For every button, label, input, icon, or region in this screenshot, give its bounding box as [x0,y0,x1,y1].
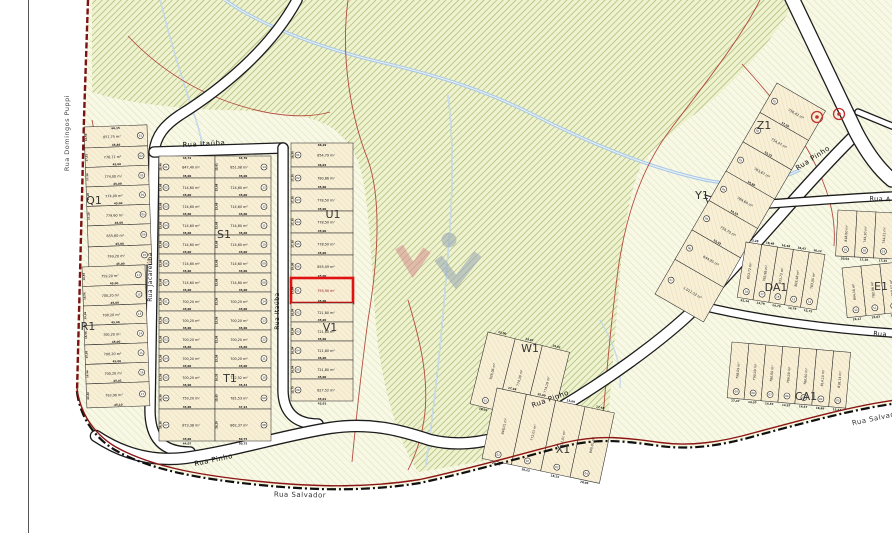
dimension-label: 45,86 [112,143,121,147]
dimension-label: 45,00 [239,231,248,235]
dimension-label: 45,10 [114,403,123,407]
lot-number: 07 [164,423,168,427]
street-label-rua_east: Rua [873,330,887,339]
lot-number: 03 [296,330,300,334]
dimension-label: 43,01 [318,397,327,401]
lot-number: 04 [164,357,168,361]
block-label-Q1: Q1 [86,194,102,207]
dimension-label: 45,00 [239,364,248,368]
dimension-label: 45,00 [112,340,121,344]
dimension-label: 45,00 [183,250,192,254]
lot-area-label: 774,00 m² [105,194,123,199]
dimension-label: 14,57 [782,403,791,408]
lot-area-label: 776,71 m² [104,155,122,160]
lot-number: 02 [296,176,300,180]
dimension-label: 45,00 [111,320,120,324]
dimension-label: 15,68 [159,183,162,191]
dimension-label: 44,07 [183,441,192,445]
lot-area-label: 799,20 m² [107,254,125,259]
block-label-V1: V1 [323,321,338,334]
dimension-label: 45,00 [239,288,248,292]
street-label-jacareuba: Rua Jacareúba [147,252,154,302]
lot-area-label: 700,20 m² [182,319,200,323]
dimension-label: 20,04 [841,256,850,260]
street-label-itauba_side: Rua Itaúba [274,292,281,329]
dimension-label: 16,50 [291,151,294,159]
lot-number: 05 [296,242,300,246]
dimension-label: 45,00 [183,288,192,292]
lot-area-label: 714,60 m² [230,205,248,209]
dimension-label: 45,00 [183,231,192,235]
dimension-label: 15,68 [159,240,162,248]
dimension-label: 16,56 [83,273,86,281]
block-RA: 20,04818,60 m²0117,26744,30 m²0217,25744… [835,210,892,263]
dimension-label: 45,00 [115,242,124,246]
dimension-label: 26,29 [215,421,218,429]
block-label-Z1: Z1 [757,119,772,132]
dimension-label: 15,68 [159,221,162,229]
lot-area-label: 714,60 m² [182,262,200,266]
dimension-label: 15,56 [159,335,162,343]
lot-area-label: 778,50 m² [317,198,335,202]
lot-number: 01 [296,289,300,293]
dimension-label: 19,00 [291,262,294,270]
dimension-label: 45,00 [112,359,121,363]
dimension-label: 15,56 [86,370,89,378]
dimension-label: 45,44 [239,383,248,387]
lot-number: 02 [164,186,168,190]
dimension-label: 43,01 [318,401,327,405]
dimension-label: 15,75 [291,386,294,394]
lot-number: 01 [844,247,848,251]
dimension-label: 17,84 [291,286,294,294]
dimension-label: 15,68 [215,278,218,286]
dimension-label: 45,00 [318,229,327,233]
lot-number: 11 [137,273,141,277]
block-label-R1: R1 [81,320,96,333]
lot-area-label: 855,09 m² [317,265,335,269]
lot-area-label: 700,20 m² [182,300,200,304]
lot-number: 08 [262,423,266,427]
lot-area-label: 714,60 m² [182,224,200,228]
lot-number: 10 [262,243,266,247]
dimension-label: 45,00 [239,326,248,330]
lot-area-label: 827,52 m² [317,388,335,392]
lot-number: 06 [164,262,168,266]
dimension-label: 15,65 [215,394,218,402]
dimension-label: 17,30 [291,174,294,182]
lot-area-label: 700,20 m² [182,338,200,342]
dimension-label: 45,00 [239,193,248,197]
lot-area-label: 851,08 m² [230,165,248,169]
dimension-label: 15,56 [215,335,218,343]
dimension-label: 15,68 [215,202,218,210]
dimension-label: 19,30 [159,421,162,429]
lot-number: 14 [262,165,266,169]
survey-marker-dot [837,112,841,116]
dimension-label: 45,00 [110,301,119,305]
lot-number: 03 [140,173,144,177]
lot-area-label: 873,38 m² [182,423,200,427]
dimension-label: 15,68 [159,202,162,210]
lot-number: 05 [141,212,145,216]
lot-number: 02 [164,319,168,323]
lot-number: 13 [138,312,142,316]
dimension-label: 43,70 [239,156,248,160]
block-label-X1: X1 [556,443,571,456]
dimension-label: 45,00 [183,307,192,311]
street-label-salvador_e: Rua Salvador [851,409,892,428]
lot-number: 01 [139,133,143,137]
dimension-label: 18,23 [521,467,530,473]
dimension-label: 45,00 [116,262,125,266]
dimension-label: 16,04 [291,308,294,316]
lot-area-label: 847,40 m² [182,165,200,169]
dimension-label: 16,69 [816,406,825,411]
dimension-label: 45,00 [112,162,121,166]
dimension-label: 15,68 [215,240,218,248]
lot-number: 11 [262,224,266,228]
dimension-label: 15,56 [83,292,86,300]
dimension-label: 23,36 [87,392,90,400]
lot-number: 07 [143,253,147,257]
lot-number: 01 [164,300,168,304]
dimension-label: 45,00 [318,185,327,189]
lot-area-label: 700,20 m² [102,293,120,298]
lot-number: 05 [164,376,168,380]
dimension-label: 45,00 [239,345,248,349]
lot-area-label: 857,75 m² [103,135,121,140]
lot-number: 12 [262,205,266,209]
street-label-domingos_puppi: Rua Domingos Puppi [63,95,71,171]
lot-area-label: 700,20 m² [230,357,248,361]
block-U1: 66,2946,0416,5001854,79 m²45,0017,300278… [291,143,353,278]
dimension-label: 16,35 [215,373,218,381]
lot-number: 14 [139,331,143,335]
lot-number: 12 [137,292,141,296]
dimension-label: 14,57 [748,400,757,405]
dimension-label: 45,00 [183,345,192,349]
lot-number: 15 [139,351,143,355]
lot-number: 16 [140,370,144,374]
dimension-label: 45,00 [183,326,192,330]
lot-number: 12 [262,338,266,342]
dimension-label: 14,57 [765,401,774,406]
block-V1: 45,0017,8401793,90 m²45,0016,0402721,80 … [291,278,353,405]
dimension-label: 15,56 [215,316,218,324]
dimension-label: 45,00 [239,212,248,216]
lot-area-label: 700,20 m² [230,319,248,323]
lot-area-label: 700,20 m² [102,313,120,318]
lot-number: 03 [296,198,300,202]
lot-number: 13 [262,319,266,323]
lot-number: 09 [262,262,266,266]
dimension-label: 45,00 [183,383,192,387]
lot-number: 10 [262,376,266,380]
lot-area-label: 862,37 m² [230,423,248,427]
dimension-label: 43,72 [183,156,192,160]
dimension-label: 47,24 [239,405,248,409]
lot-area-label: 700,20 m² [104,371,122,376]
lot-number: 06 [164,396,168,400]
lot-number: 13 [262,186,266,190]
dimension-label: 45,00 [113,182,122,186]
lot-number: 03 [164,205,168,209]
dimension-label: 45,00 [183,212,192,216]
dimension-label: 17,26 [860,257,869,261]
dimension-label: 16,04 [291,327,294,335]
dimension-label: 17,31 [85,153,88,161]
lot-area-label: 714,60 m² [230,186,248,190]
dimension-label: 16,04 [291,346,294,354]
block-S1: 43,7245,0015,4601847,40 m²45,0015,680271… [159,156,215,292]
block-label-E1: E1 [874,280,888,293]
lot-area-label: 793,90 m² [105,393,123,398]
lot-area-label: 714,60 m² [182,243,200,247]
lot-number: 06 [296,388,300,392]
block-S1: 43,7045,0015,6114851,08 m²45,0015,681371… [215,156,271,292]
dimension-label: 14,57 [799,404,808,409]
dimension-label: 15,56 [159,316,162,324]
lot-area-label: 721,80 m² [317,368,335,372]
dimension-label: 15,56 [84,311,87,319]
dimension-label: 15,56 [159,354,162,362]
block-R1: 45,0016,5611759,20 m²45,0015,5612700,20 … [82,265,150,408]
survey-marker-dot [815,115,819,119]
dimension-label: 50,75 [239,441,248,445]
dimension-label: 45,00 [183,405,192,409]
plat-map: 66,1545,8616,5001857,75 m²45,0017,310277… [0,0,892,533]
dimension-label: 45,00 [318,356,327,360]
dimension-label: 45,00 [110,281,119,285]
lot-area-label: 700,20 m² [182,357,200,361]
lot-number: 02 [296,311,300,315]
dimension-label: 45,00 [239,250,248,254]
dimension-label: 66,15 [111,126,120,130]
dimension-label: 15,56 [85,350,88,358]
dimension-label: 15,68 [159,278,162,286]
dimension-label: 45,01 [113,379,122,383]
lot-number: 14 [262,300,266,304]
lot-area-label: 759,20 m² [182,396,200,400]
dimension-label: 45,00 [318,299,327,303]
lot-area-label: 854,79 m² [317,153,335,157]
dimension-label: 15,56 [215,354,218,362]
lot-area-label: 855,60 m² [106,234,124,239]
lot-area-label: 714,60 m² [182,205,200,209]
dimension-label: 15,68 [215,259,218,267]
dimension-label: 45,00 [239,269,248,273]
lot-area-label: 714,60 m² [230,243,248,247]
lot-area-label: 700,20 m² [104,352,122,357]
dimension-label: 15,56 [159,297,162,305]
dimension-label: 45,00 [114,201,123,205]
lot-number: 06 [296,265,300,269]
dimension-label: 18,23 [550,473,559,479]
lot-area-label: 714,60 m² [182,186,200,190]
lot-number: 09 [262,396,266,400]
lot-area-label: 780,86 m² [317,176,335,180]
lot-area-label: 781,53 m² [230,396,248,400]
dimension-label: 45,00 [318,337,327,341]
dimension-label: 45,00 [239,174,248,178]
dimension-label: 15,56 [215,297,218,305]
lot-number: 06 [142,232,146,236]
lot-number: 04 [164,224,168,228]
lot-area-label: 721,80 m² [317,311,335,315]
lot-number: 05 [296,368,300,372]
dimension-label: 45,00 [183,437,192,441]
lot-area-label: 721,80 m² [317,349,335,353]
block-T1: 45,0015,5614700,20 m²45,0015,5613700,20 … [215,292,271,445]
lot-area-label: 700,20 m² [182,376,200,380]
block-label-Y1: Y1 [694,189,709,202]
dimension-label: 17,47 [731,398,740,403]
lot-area-label: 774,00 m² [104,174,122,179]
lot-number: 11 [262,357,266,361]
lot-area-label: 714,60 m² [230,262,248,266]
lot-area-label: 714,60 m² [182,281,200,285]
street-label-rua_a: Rua A [869,195,891,204]
dimension-label: 20,05 [580,480,589,486]
dimension-label: 17,20 [86,173,89,181]
block-label-T1: T1 [222,372,237,385]
lot-area-label: 779,60 m² [106,213,124,218]
lot-number: 05 [164,243,168,247]
lot-area-label: 778,50 m² [317,242,335,246]
dimension-label: 16,56 [159,394,162,402]
lot-area-label: 700,20 m² [230,338,248,342]
block-T1: 45,0015,5601700,20 m²45,0015,5602700,20 … [159,292,215,445]
dimension-label: 45,00 [115,221,124,225]
lot-number: 07 [164,281,168,285]
lot-area-label: 700,20 m² [103,332,121,337]
lot-number: 04 [141,193,145,197]
dimension-label: 45,00 [318,251,327,255]
dimension-label: 16,04 [291,365,294,373]
lot-number: 04 [296,220,300,224]
lot-area-label: 714,60 m² [230,224,248,228]
block-label-DA1: DA1 [765,281,788,294]
lot-number: 03 [164,338,168,342]
lot-number: 01 [296,153,300,157]
dimension-label: 17,25 [879,258,888,262]
dimension-label: 50,75 [239,437,248,441]
lot-area-label: 714,60 m² [230,281,248,285]
dimension-label: 45,00 [183,174,192,178]
lot-area-label: 778,50 m² [317,220,335,224]
street-label-salvador_w: Rua Salvador [274,491,326,500]
lot-number: 01 [164,165,168,169]
lot-area-label: 793,90 m² [317,289,335,293]
lot-number: 04 [296,349,300,353]
dimension-label: 15,56 [159,373,162,381]
block-label-CA1: CA1 [795,390,817,403]
dimension-label: 15,68 [159,259,162,267]
dimension-label: 15,68 [215,183,218,191]
lot-number: 02 [863,248,867,252]
dimension-label: 45,00 [183,269,192,273]
lot-area-label: 700,20 m² [230,300,248,304]
lot-number: 17 [141,392,145,396]
dimension-label: 66,29 [318,143,327,147]
dimension-label: 15,61 [215,163,218,171]
dimension-label: 45,00 [318,375,327,379]
block-label-S1: S1 [217,228,231,241]
dimension-label: 17,30 [291,218,294,226]
dimension-label: 16,50 [85,133,88,141]
dimension-label: 15,46 [159,163,162,171]
dimension-label: 17,30 [291,240,294,248]
lot-area-label: 759,20 m² [101,274,119,279]
block-label-U1: U1 [325,208,340,221]
lot-number: 02 [139,154,143,158]
dimension-label: 17,30 [291,196,294,204]
lot-number: 03 [882,249,886,253]
dimension-label: 45,00 [239,307,248,311]
dimension-label: 17,20 [87,212,90,220]
subdivision-map-canvas: 66,1545,8616,5001857,75 m²45,0017,310277… [0,0,892,533]
block-label-W1: W1 [521,342,539,355]
dimension-label: 45,00 [183,364,192,368]
lot-number: 08 [262,281,266,285]
dimension-label: 45,00 [183,193,192,197]
dimension-label: 46,04 [318,163,327,167]
